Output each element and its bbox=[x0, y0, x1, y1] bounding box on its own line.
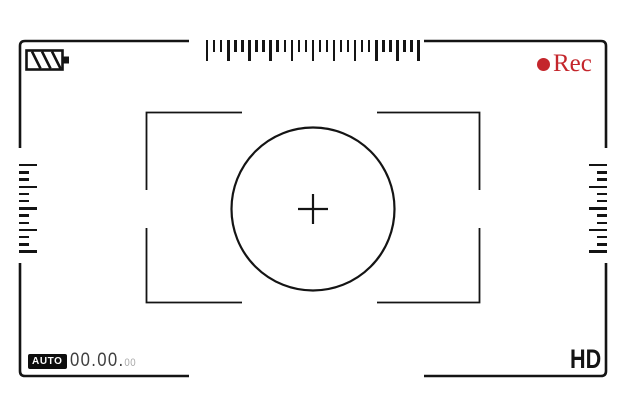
hd-quality-label: HD bbox=[570, 344, 601, 375]
ruler-tick bbox=[269, 40, 271, 61]
ruler-tick bbox=[255, 40, 257, 52]
crosshair-icon bbox=[298, 194, 328, 224]
ruler-tick bbox=[305, 40, 307, 52]
left-focus-ruler bbox=[19, 164, 37, 253]
ruler-tick bbox=[19, 164, 37, 166]
ruler-tick bbox=[19, 193, 29, 195]
counter-main: 00.00. bbox=[70, 350, 124, 371]
ruler-tick bbox=[589, 164, 607, 166]
ruler-tick bbox=[589, 229, 607, 231]
ruler-tick bbox=[361, 40, 363, 52]
ruler-tick bbox=[597, 236, 607, 238]
ruler-tick bbox=[382, 40, 384, 52]
ruler-tick bbox=[375, 40, 377, 61]
ruler-tick bbox=[19, 229, 37, 231]
ruler-tick bbox=[19, 200, 29, 202]
ruler-tick bbox=[597, 200, 607, 202]
ruler-tick bbox=[276, 40, 278, 52]
ruler-tick bbox=[597, 214, 607, 216]
ruler-tick bbox=[597, 171, 607, 173]
ruler-tick bbox=[326, 40, 328, 52]
ruler-tick bbox=[417, 40, 419, 61]
ruler-tick bbox=[220, 40, 222, 52]
ruler-tick bbox=[354, 40, 356, 61]
ruler-tick bbox=[340, 40, 342, 52]
auto-mode-badge: AUTO bbox=[28, 354, 67, 369]
recording-counter: 00.00.00 bbox=[70, 350, 136, 372]
ruler-tick bbox=[396, 40, 398, 61]
ruler-tick bbox=[589, 250, 607, 252]
focus-bracket-top-right bbox=[377, 113, 480, 191]
ruler-tick bbox=[291, 40, 293, 61]
ruler-tick bbox=[298, 40, 300, 52]
battery-stripe bbox=[32, 52, 41, 69]
ruler-tick bbox=[19, 214, 29, 216]
focus-bracket-top-left bbox=[147, 113, 243, 191]
ruler-tick bbox=[206, 40, 208, 61]
ruler-tick bbox=[19, 243, 29, 245]
battery-stripe bbox=[52, 52, 61, 69]
right-focus-ruler bbox=[589, 164, 607, 253]
ruler-tick bbox=[19, 236, 29, 238]
focus-bracket-bottom-left bbox=[147, 228, 243, 303]
ruler-tick bbox=[19, 178, 29, 180]
rec-label: Rec bbox=[553, 51, 592, 77]
camera-viewfinder: Rec AUTO 00.00.00 HD bbox=[0, 0, 626, 418]
ruler-tick bbox=[333, 40, 335, 61]
ruler-tick bbox=[597, 222, 607, 224]
rec-dot-icon bbox=[537, 58, 550, 71]
ruler-tick bbox=[347, 40, 349, 52]
ruler-tick bbox=[589, 207, 607, 209]
ruler-tick bbox=[19, 186, 37, 188]
focus-bracket-bottom-right bbox=[377, 228, 480, 303]
ruler-tick bbox=[248, 40, 250, 61]
ruler-tick bbox=[19, 250, 37, 252]
battery-stripe bbox=[42, 52, 51, 69]
ruler-tick bbox=[234, 40, 236, 52]
ruler-tick bbox=[319, 40, 321, 52]
ruler-tick bbox=[213, 40, 215, 52]
ruler-tick bbox=[410, 40, 412, 52]
ruler-tick bbox=[284, 40, 286, 52]
rec-indicator: Rec bbox=[537, 51, 592, 77]
ruler-tick bbox=[389, 40, 391, 52]
ruler-tick bbox=[227, 40, 229, 61]
ruler-tick bbox=[597, 178, 607, 180]
ruler-tick bbox=[262, 40, 264, 52]
ruler-tick bbox=[241, 40, 243, 52]
battery-icon bbox=[25, 48, 71, 72]
ruler-tick bbox=[589, 186, 607, 188]
top-exposure-ruler bbox=[206, 40, 420, 61]
ruler-tick bbox=[368, 40, 370, 52]
ruler-tick bbox=[19, 222, 29, 224]
ruler-tick bbox=[312, 40, 314, 61]
ruler-tick bbox=[597, 243, 607, 245]
counter-sub: 00 bbox=[124, 357, 136, 369]
ruler-tick bbox=[19, 171, 29, 173]
ruler-tick bbox=[19, 207, 37, 209]
ruler-tick bbox=[597, 193, 607, 195]
ruler-tick bbox=[403, 40, 405, 52]
